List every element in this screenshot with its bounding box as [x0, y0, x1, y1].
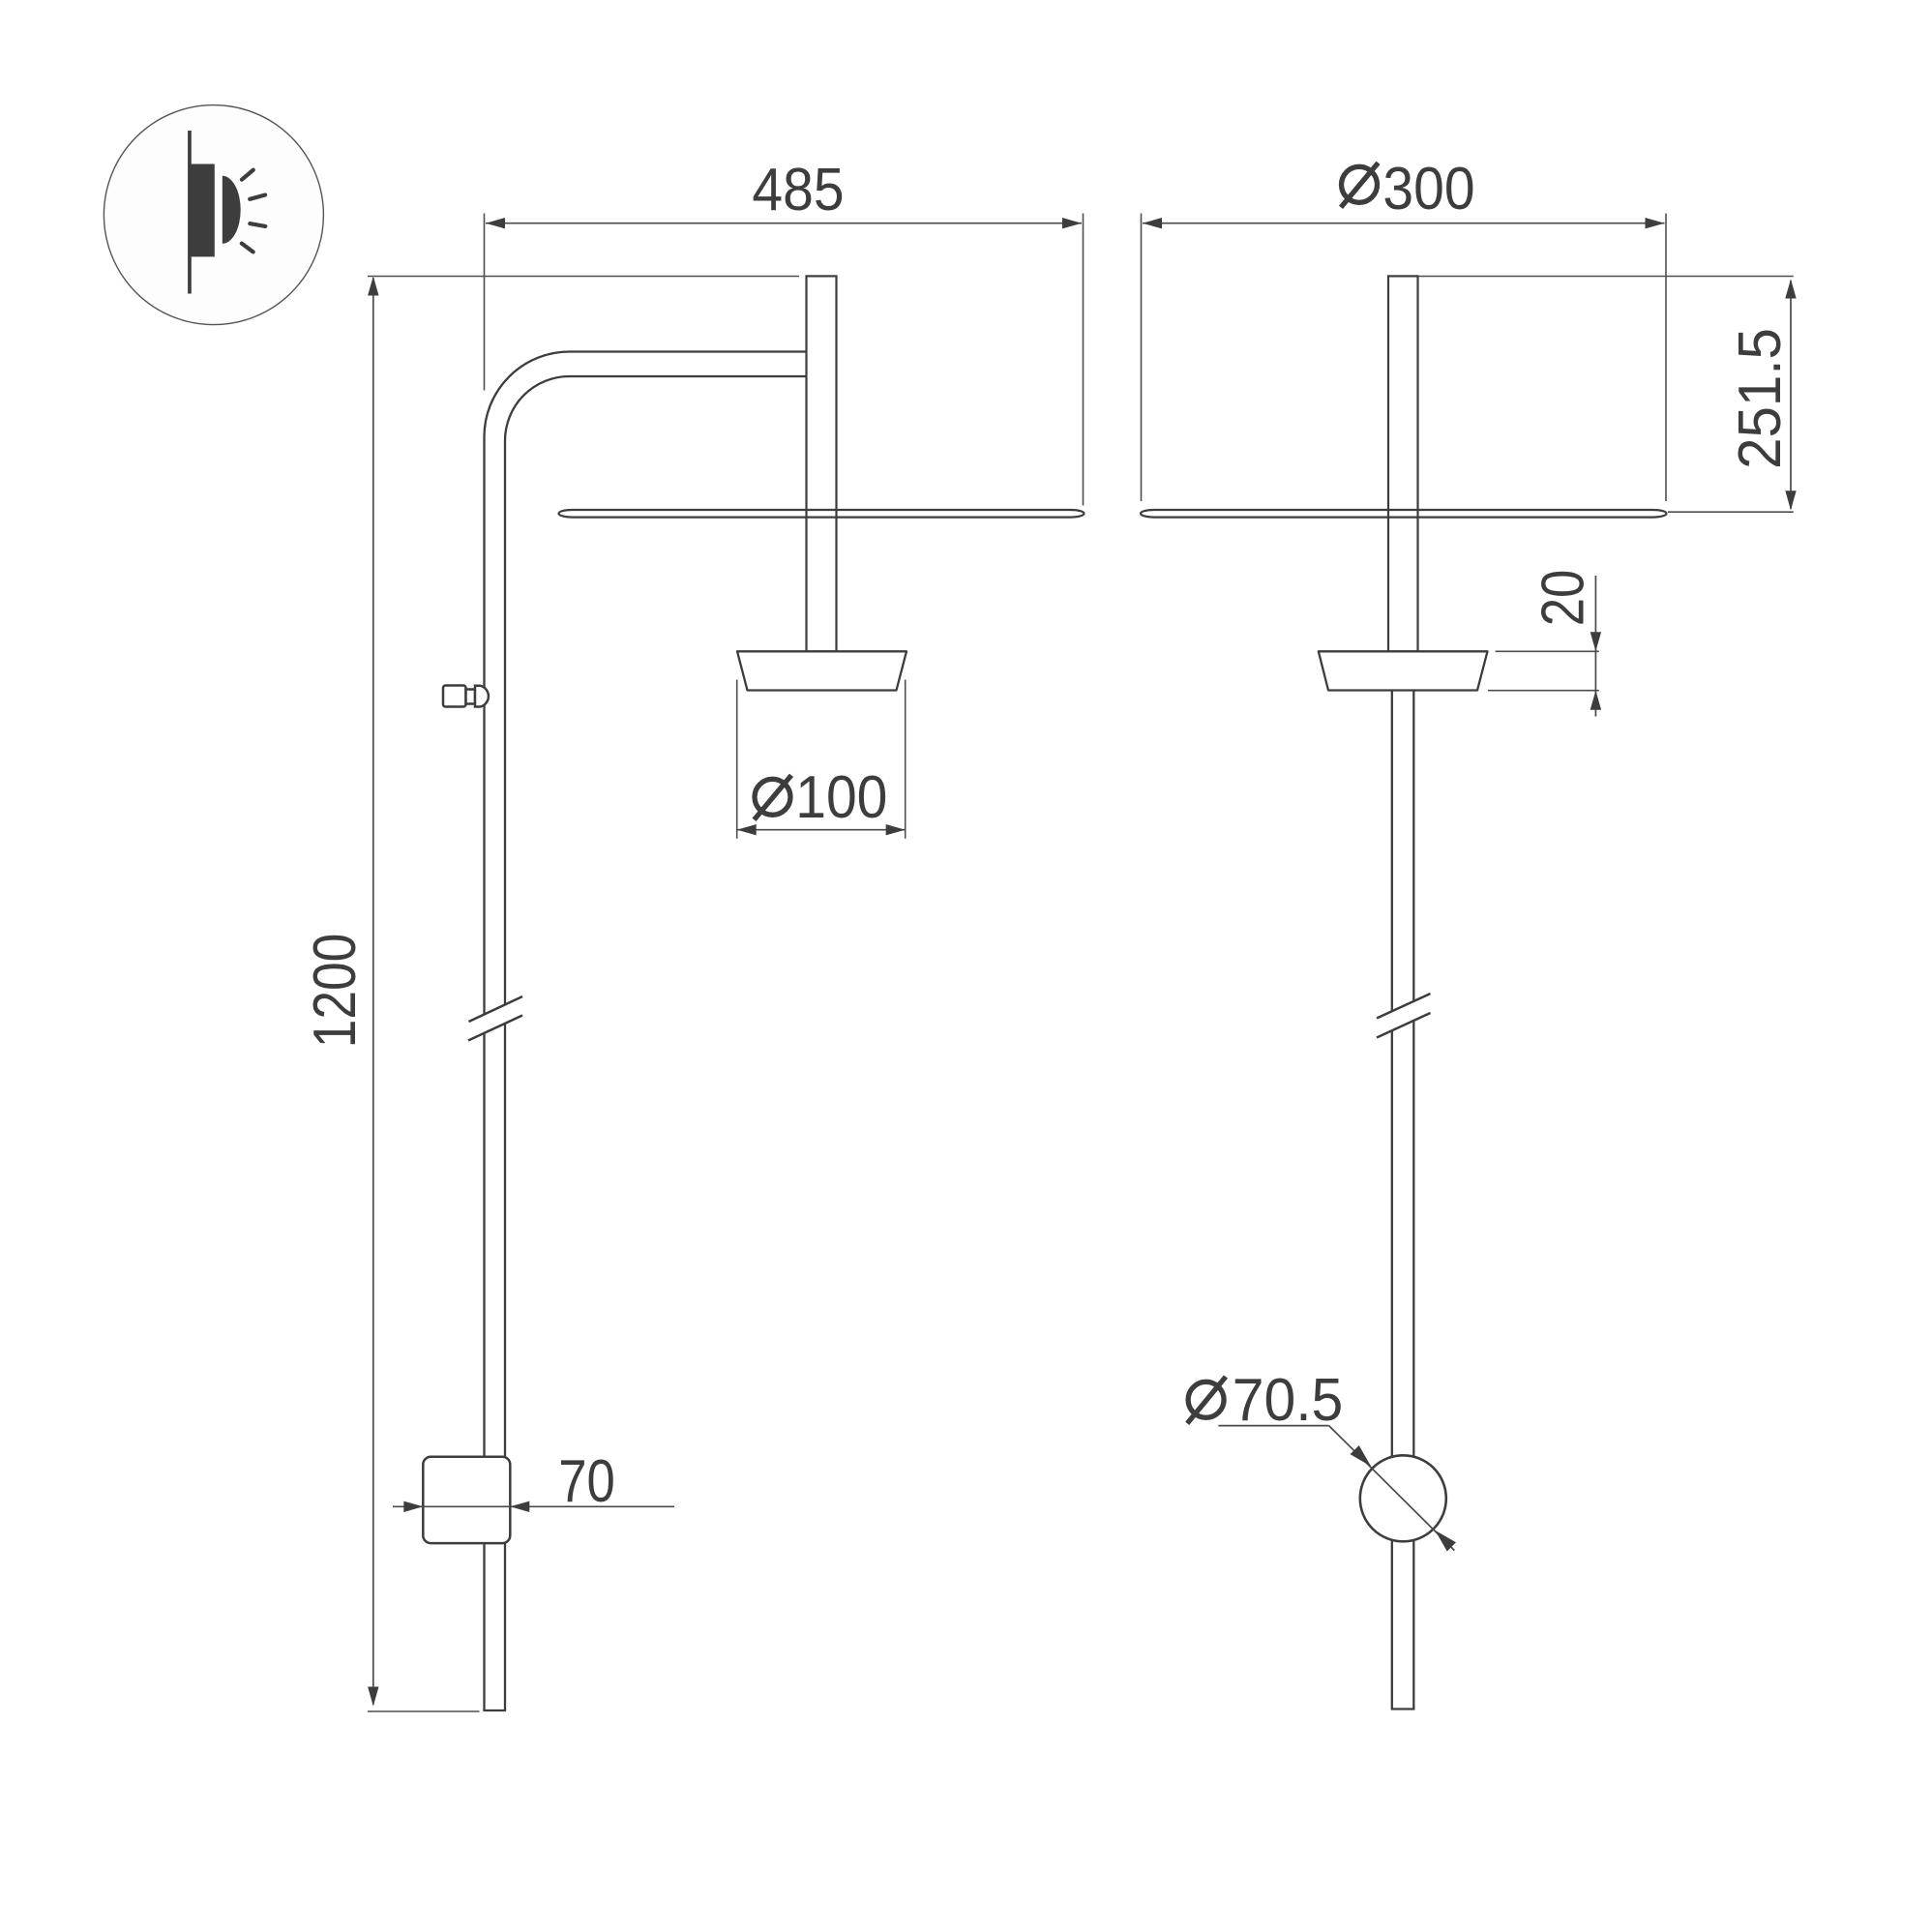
- svg-text:100: 100: [795, 763, 887, 831]
- svg-text:20: 20: [1531, 570, 1597, 627]
- svg-text:70.5: 70.5: [1233, 1366, 1344, 1434]
- svg-text:485: 485: [752, 156, 844, 223]
- svg-text:251.5: 251.5: [1726, 328, 1793, 469]
- svg-text:1200: 1200: [302, 934, 369, 1049]
- svg-text:70: 70: [558, 1448, 615, 1515]
- svg-text:300: 300: [1382, 155, 1474, 223]
